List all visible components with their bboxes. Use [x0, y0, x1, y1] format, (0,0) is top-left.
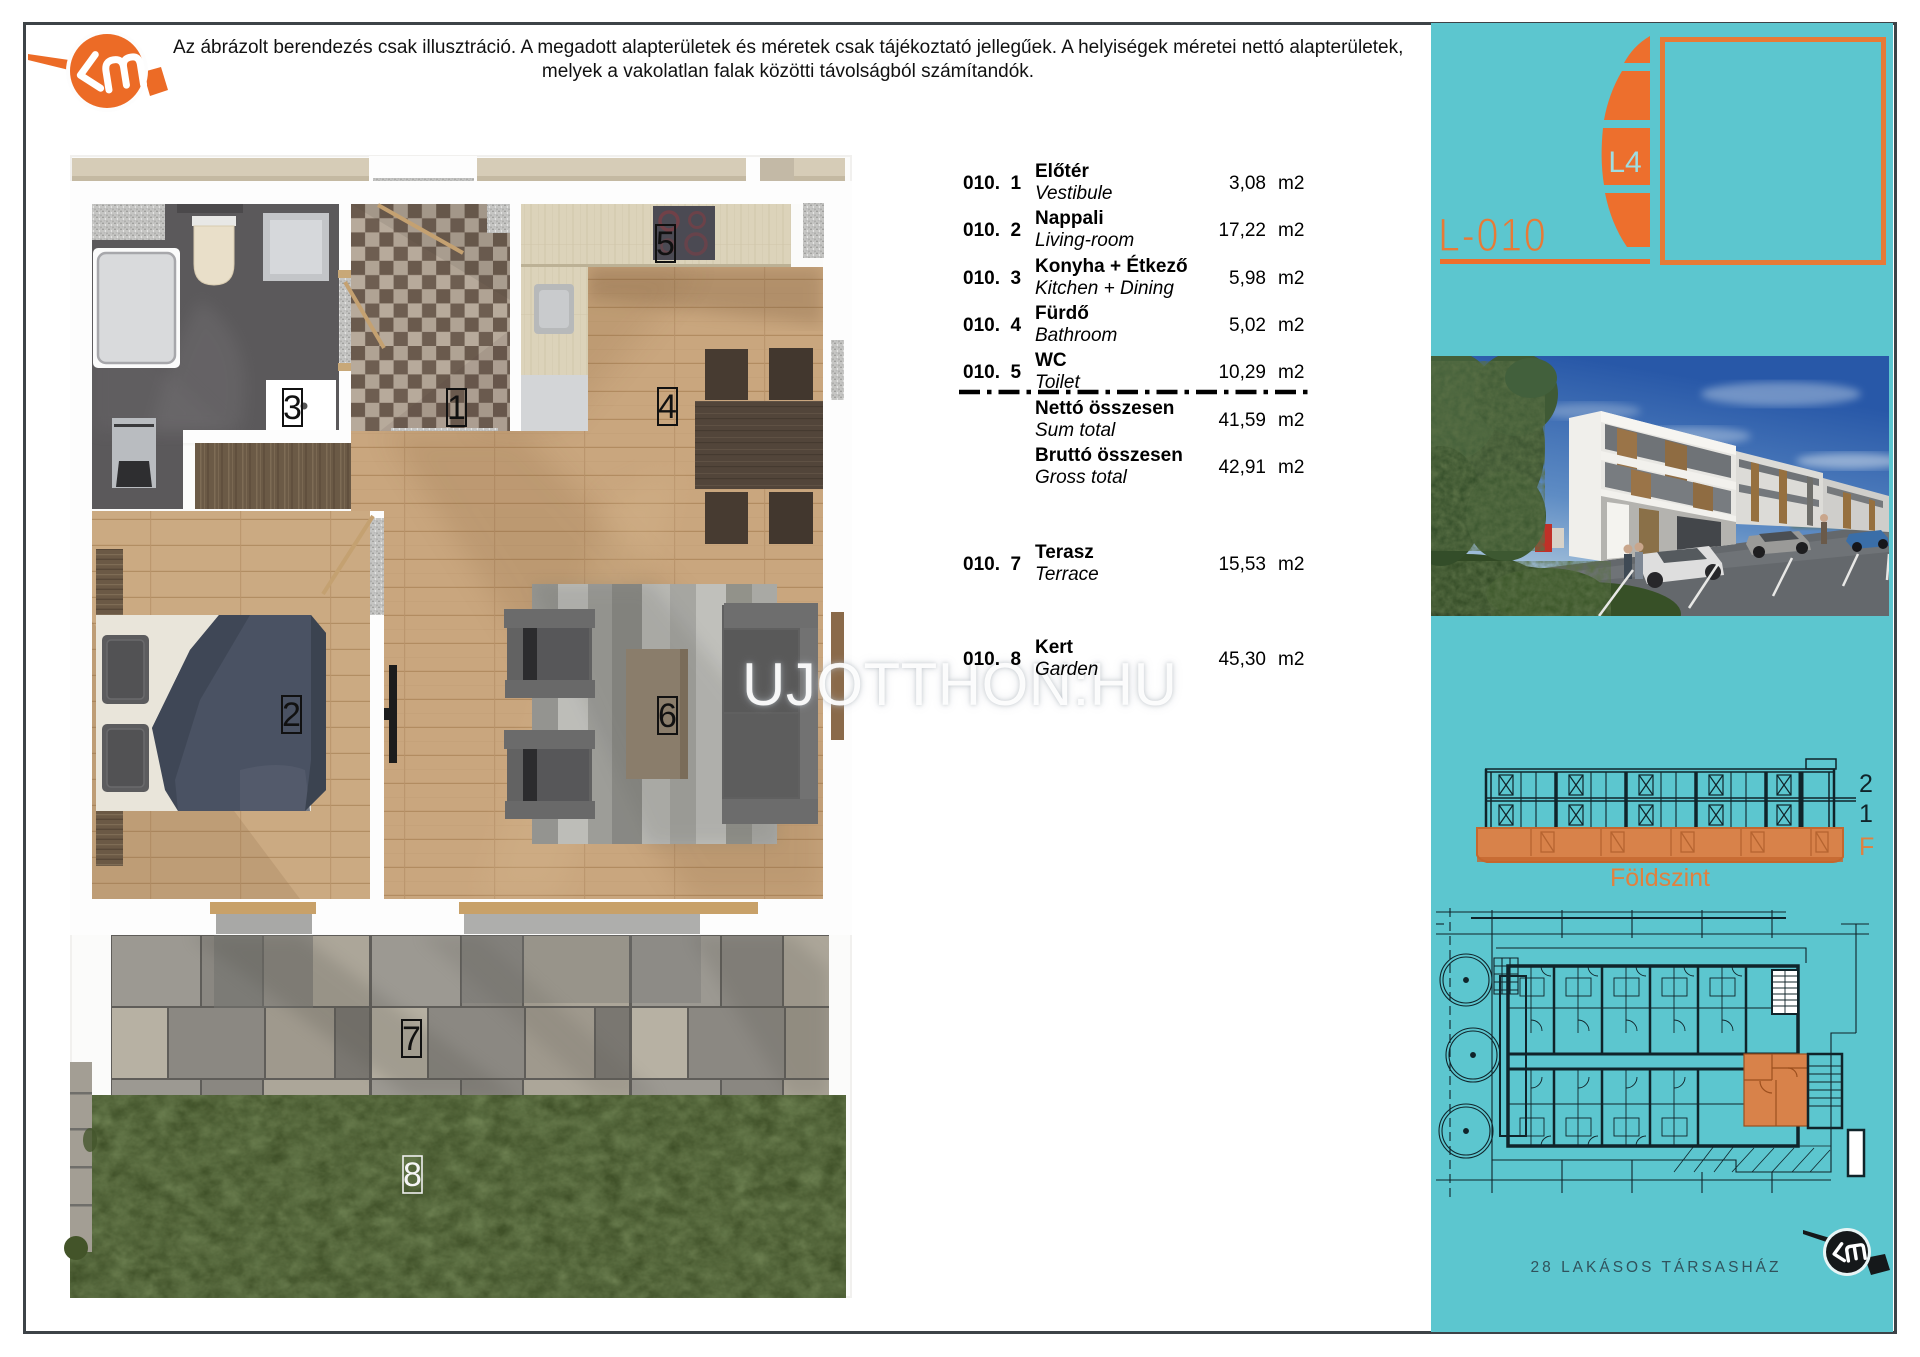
svg-text:L4: L4 [1608, 146, 1641, 179]
svg-text:1: 1 [1859, 800, 1873, 828]
svg-text:F: F [1859, 833, 1874, 861]
svg-text:2: 2 [1859, 770, 1873, 798]
svg-text:Földszint: Földszint [1610, 864, 1710, 892]
